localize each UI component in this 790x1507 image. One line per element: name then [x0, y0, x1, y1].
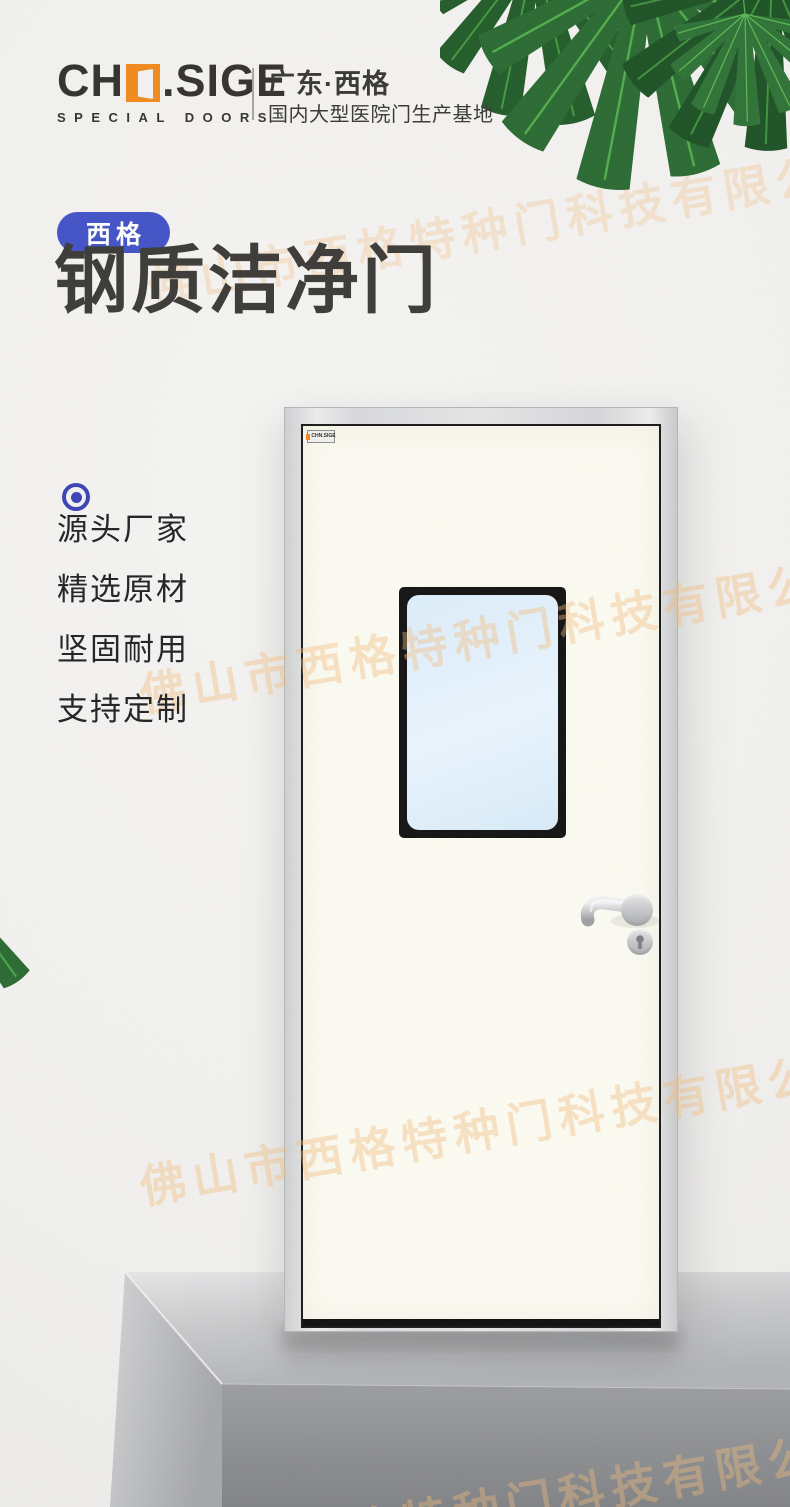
- feature-item: 精选原材: [57, 573, 189, 606]
- sticker-label: CHN.SIGE: [311, 434, 335, 439]
- logo-door-n-icon: [126, 64, 160, 102]
- door-shadow: [286, 1330, 676, 1372]
- feature-list: 源头厂家 精选原材 坚固耐用 支持定制: [57, 513, 189, 753]
- brand-tagline: 国内大型医院门生产基地: [268, 98, 494, 127]
- door-handle: [569, 879, 669, 969]
- feature-item: 源头厂家: [57, 513, 189, 546]
- window-glass: [407, 595, 558, 830]
- door-vision-window: [399, 587, 566, 838]
- target-bullet-icon: [62, 483, 90, 511]
- feature-item: 支持定制: [57, 693, 189, 726]
- poster-canvas: 佛山市西格特种门科技有限公司 佛山市西格特种门科技有限公司 佛山市西格特种门科技…: [0, 0, 790, 1507]
- door-bottom-seal: [303, 1319, 659, 1326]
- door-leaf: CHN.SIGE: [301, 424, 661, 1328]
- leaf-icon: [0, 812, 48, 1102]
- feature-item: 坚固耐用: [57, 633, 189, 666]
- sticker-orange-mark-icon: [306, 434, 310, 440]
- monstera-leaf-left: [0, 812, 140, 1102]
- brand-region: 广东·西格: [268, 62, 390, 101]
- header-divider: [252, 68, 254, 120]
- product-title: 钢质洁净门: [54, 240, 439, 321]
- door-frame: CHN.SIGE: [284, 407, 678, 1332]
- logo-prefix: CH: [57, 58, 124, 103]
- door-brand-sticker: CHN.SIGE: [307, 430, 335, 443]
